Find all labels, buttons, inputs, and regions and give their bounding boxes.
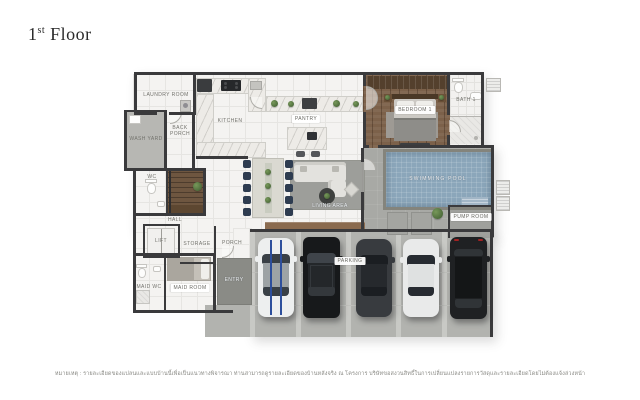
dining-chair (243, 172, 251, 180)
dining-chair (243, 184, 251, 192)
ac-unit (496, 196, 510, 211)
car-black-suv (303, 237, 340, 318)
title-ordinal: st (38, 25, 46, 36)
page-title: 1stFloor (28, 24, 92, 45)
dining-plant (265, 183, 271, 189)
console-shelf (265, 222, 365, 229)
label-porch: PORCH (222, 240, 242, 246)
title-number: 1 (28, 24, 38, 44)
car-white-sedan (403, 239, 439, 317)
label-pantry: PANTRY (292, 115, 320, 123)
nightstand-plant (385, 95, 390, 100)
label-back-porch: BACK PORCH (168, 125, 192, 137)
dining-chair (285, 160, 293, 168)
label-living-area: LIVING AREA (312, 203, 348, 209)
label-maid-wc: MAID WC (136, 284, 161, 290)
toilet-bowl (454, 82, 463, 93)
pantry-plant (333, 100, 340, 107)
label-parking: PARKING (335, 257, 366, 265)
dining-plant (265, 197, 271, 203)
label-maid-room: MAID ROOM (170, 284, 209, 292)
label-storage: STORAGE (183, 241, 210, 247)
car-black-van (450, 237, 487, 319)
coffee-machine (307, 132, 317, 140)
wardrobe (367, 76, 447, 89)
label-bath-1: BATH 1 (456, 97, 476, 103)
deck-plant (432, 208, 443, 219)
laundry-washer (180, 100, 191, 112)
island-stool (311, 151, 320, 157)
pantry-plant (353, 101, 359, 107)
label-entry: ENTRY (225, 277, 244, 283)
label-kitchen: KITCHEN (218, 118, 243, 124)
stair-rail (169, 171, 171, 213)
pantry-appliance (302, 98, 317, 109)
title-word: Floor (50, 24, 92, 44)
label-hall: HALL (168, 217, 182, 223)
sofa-pillow (332, 166, 339, 172)
pantry-plant (288, 101, 294, 107)
car-white-coupe (258, 238, 294, 317)
label-wash-yard: WASH YARD (129, 136, 162, 142)
stair-plant (193, 182, 202, 191)
island-stool (296, 151, 305, 157)
dining-chair (285, 208, 293, 216)
label-bedroom-1: BEDROOM 1 (395, 106, 435, 114)
kitchen-sink (250, 81, 262, 90)
ac-unit (496, 180, 510, 195)
label-swimming-pool: SWIMMING POOL (409, 176, 467, 182)
nightstand-plant (439, 95, 444, 100)
fridge (197, 79, 212, 92)
label-wc: WC (147, 174, 156, 180)
dining-chair (285, 196, 293, 204)
label-lift: LIFT (155, 238, 167, 244)
label-laundry-room: LAUNDRY ROOM (143, 92, 188, 98)
dining-chair (243, 208, 251, 216)
dining-chair (285, 184, 293, 192)
cooktop (221, 80, 241, 91)
pantry-plant (271, 100, 278, 107)
pump-room-floor (450, 207, 494, 238)
car-gray-sedan (356, 239, 392, 317)
ac-unit (486, 78, 501, 92)
footnote-disclaimer: หมายเหตุ : รายละเอียดของแปลนและแบบบ้านนี… (20, 370, 620, 378)
coffee-table-plant (324, 193, 330, 199)
stair-landing (168, 205, 203, 213)
bed-blanket (394, 118, 436, 141)
dining-chair (285, 172, 293, 180)
label-pump-room: PUMP ROOM (451, 213, 492, 221)
sofa-pillow (300, 166, 307, 172)
sofa (294, 162, 346, 182)
dining-plant (265, 169, 271, 175)
dining-chair (243, 196, 251, 204)
dining-chair (243, 160, 251, 168)
